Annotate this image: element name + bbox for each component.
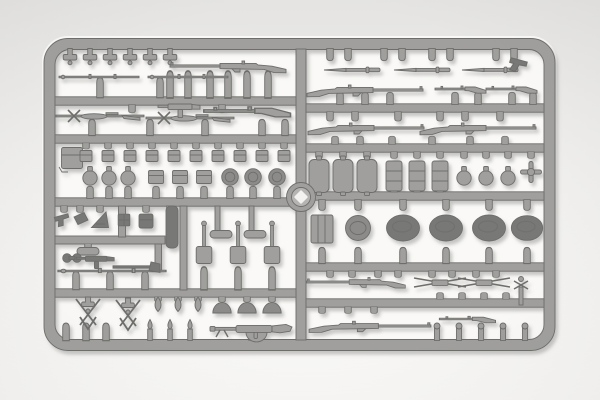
ammo-pouch bbox=[234, 151, 246, 162]
ammo-pouch bbox=[124, 151, 136, 162]
ribbed-cup bbox=[311, 215, 333, 243]
scabbard bbox=[166, 206, 178, 248]
mess-tin-lid bbox=[245, 169, 262, 186]
runner-right-a bbox=[306, 104, 544, 112]
runner-right-b bbox=[306, 144, 544, 152]
large-pouch bbox=[149, 171, 164, 184]
runner-left-v3 bbox=[180, 206, 187, 290]
large-pouch bbox=[197, 171, 212, 184]
rect-flask bbox=[357, 156, 377, 196]
helmet bbox=[473, 215, 506, 241]
ammo-pouch bbox=[80, 151, 92, 162]
photo-of-model-kit-sprue bbox=[0, 0, 600, 400]
ammo-pouch bbox=[102, 151, 114, 162]
sprue-photo-canvas bbox=[0, 0, 600, 400]
mess-tin-lid bbox=[222, 169, 239, 186]
runner-right-d bbox=[306, 263, 544, 271]
ammo-pouch bbox=[190, 151, 202, 162]
handle-capsule bbox=[210, 231, 232, 239]
rect-flask bbox=[333, 156, 353, 196]
runner-left-c bbox=[55, 198, 296, 206]
large-pouch bbox=[173, 171, 188, 184]
mess-tin-lid bbox=[269, 169, 286, 186]
runner-left-v5 bbox=[249, 206, 254, 233]
cylinder-canteen bbox=[409, 161, 425, 191]
cylinder-canteen bbox=[432, 161, 448, 191]
ammo-pouch bbox=[256, 151, 268, 162]
gridded-pouch bbox=[118, 214, 130, 226]
ammo-pouch bbox=[146, 151, 158, 162]
runner-left-v4 bbox=[215, 206, 220, 233]
runner-left-d bbox=[55, 236, 165, 244]
helmet bbox=[387, 215, 420, 241]
pack-box bbox=[59, 148, 83, 173]
capsule-tool bbox=[77, 248, 99, 256]
rect-pouch bbox=[139, 214, 153, 228]
ammo-pouch bbox=[212, 151, 224, 162]
molding-hub bbox=[287, 183, 316, 212]
handle-capsule bbox=[244, 231, 266, 239]
mess-tin-lid bbox=[346, 216, 371, 241]
helmet bbox=[511, 216, 542, 241]
helmet bbox=[430, 215, 463, 241]
ammo-pouch bbox=[168, 151, 180, 162]
ammo-pouch bbox=[278, 151, 290, 162]
runner-right-e bbox=[306, 299, 544, 307]
cylinder-canteen bbox=[386, 161, 402, 191]
runner-left-e bbox=[55, 289, 296, 297]
